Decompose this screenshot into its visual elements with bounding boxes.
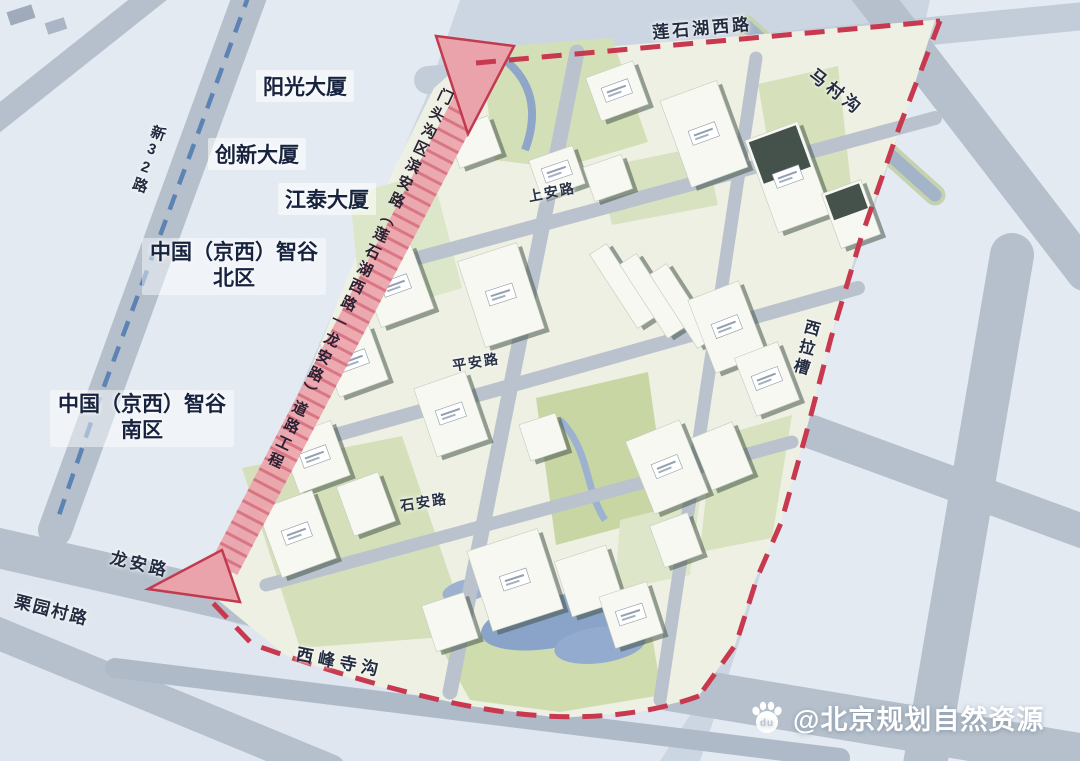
watermark-handle: @北京规划自然资源 bbox=[793, 698, 1044, 737]
label-chuangxin-tower: 创新大厦 bbox=[208, 138, 306, 170]
zhigu-south-line1: 中国（京西）智谷 bbox=[58, 392, 226, 418]
label-jiangtai-tower: 江泰大厦 bbox=[278, 183, 376, 215]
baidu-paw-icon: du bbox=[748, 700, 786, 736]
label-zhigu-north: 中国（京西）智谷 北区 bbox=[142, 238, 326, 295]
map-artwork bbox=[0, 0, 1080, 761]
zhigu-north-line1: 中国（京西）智谷 bbox=[150, 240, 318, 266]
planning-map: 阳光大厦 创新大厦 江泰大厦 中国（京西）智谷 北区 中国（京西）智谷 南区 莲… bbox=[0, 0, 1080, 761]
label-yangguang-tower: 阳光大厦 bbox=[256, 70, 354, 102]
label-zhigu-south: 中国（京西）智谷 南区 bbox=[50, 390, 234, 447]
zhigu-north-line2: 北区 bbox=[150, 266, 318, 292]
paw-du-text: du bbox=[760, 718, 774, 729]
watermark: du @北京规划自然资源 bbox=[748, 698, 1044, 737]
zhigu-south-line2: 南区 bbox=[58, 418, 226, 444]
